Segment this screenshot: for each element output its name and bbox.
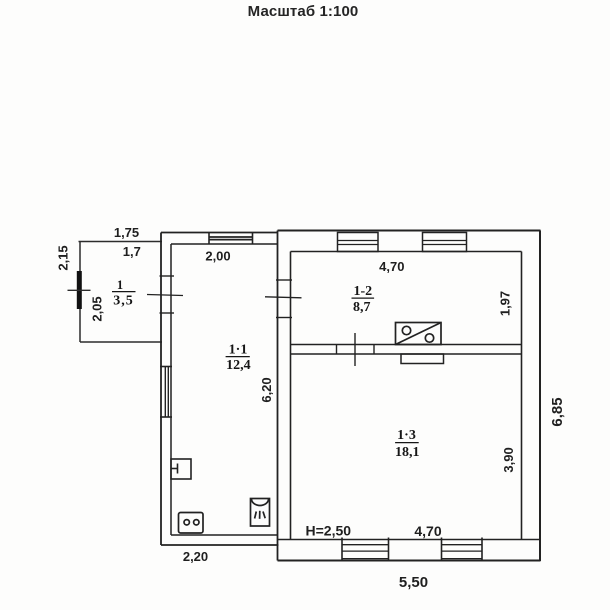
svg-text:2,20: 2,20 (183, 549, 208, 564)
svg-text:18,1: 18,1 (395, 445, 420, 460)
svg-text:2,15: 2,15 (55, 245, 70, 270)
svg-text:6,20: 6,20 (259, 377, 274, 402)
svg-text:5,50: 5,50 (399, 574, 428, 591)
svg-text:8,7: 8,7 (353, 300, 371, 315)
svg-text:4,70: 4,70 (379, 259, 404, 274)
svg-text:4,70: 4,70 (414, 523, 441, 539)
svg-text:3,90: 3,90 (501, 447, 516, 472)
svg-text:1,75: 1,75 (114, 225, 139, 240)
svg-text:1: 1 (117, 278, 123, 292)
svg-text:2,05: 2,05 (89, 296, 104, 321)
svg-text:6,85: 6,85 (549, 397, 566, 426)
svg-text:1-2: 1-2 (353, 284, 372, 299)
svg-text:1,97: 1,97 (497, 291, 512, 316)
svg-text:2,00: 2,00 (205, 249, 230, 264)
svg-text:12,4: 12,4 (226, 358, 251, 373)
svg-text:1,7: 1,7 (123, 244, 141, 259)
svg-text:3,5: 3,5 (113, 294, 134, 309)
svg-text:Масштаб 1:100: Масштаб 1:100 (248, 3, 359, 20)
svg-text:H=2,50: H=2,50 (306, 523, 352, 539)
svg-text:1·1: 1·1 (229, 343, 248, 358)
svg-text:1·3: 1·3 (397, 428, 416, 443)
